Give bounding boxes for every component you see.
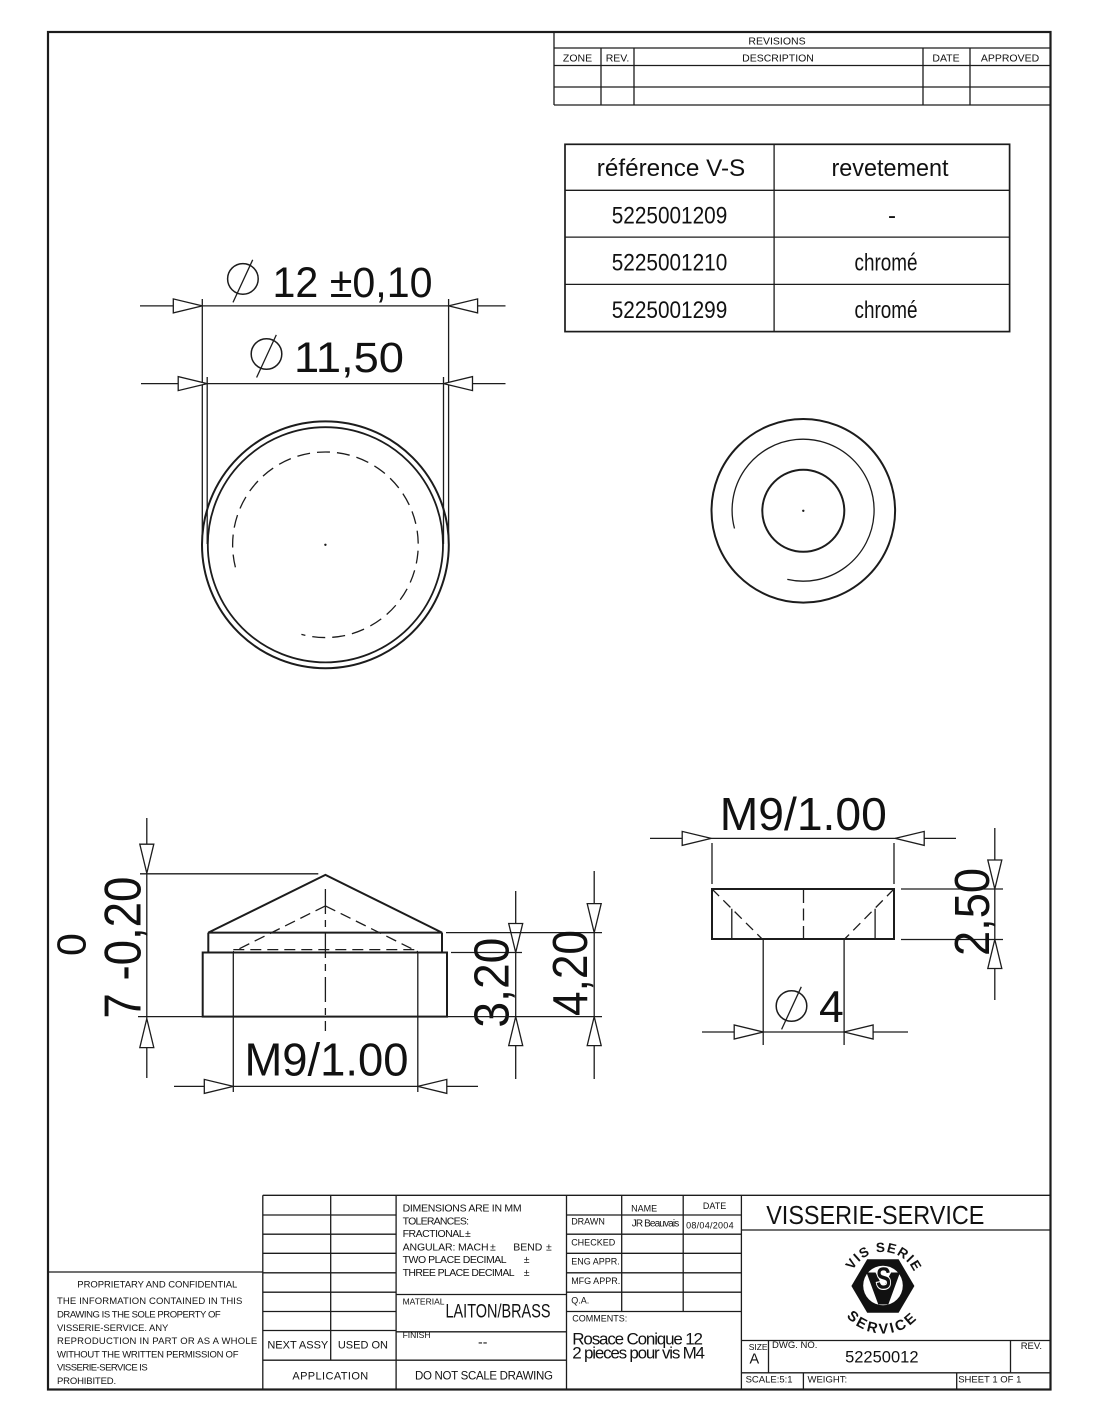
- svg-text:DATE: DATE: [932, 53, 959, 65]
- svg-text:BEND: BEND: [513, 1241, 542, 1253]
- svg-text:5225001209: 5225001209: [612, 202, 728, 229]
- svg-text:TWO PLACE DECIMAL: TWO PLACE DECIMAL: [403, 1254, 507, 1266]
- svg-text:THREE PLACE DECIMAL: THREE PLACE DECIMAL: [403, 1267, 515, 1279]
- svg-text:FRACTIONAL: FRACTIONAL: [403, 1228, 465, 1240]
- svg-text:--: --: [478, 1334, 488, 1350]
- svg-text:11,50: 11,50: [294, 335, 404, 382]
- svg-text:12 ±0,10: 12 ±0,10: [273, 260, 433, 307]
- svg-text:7 -0,20: 7 -0,20: [95, 877, 153, 1019]
- svg-text:ENG APPR.: ENG APPR.: [571, 1257, 620, 1267]
- svg-text:±: ±: [524, 1254, 530, 1266]
- svg-text:DESCRIPTION: DESCRIPTION: [742, 53, 814, 65]
- svg-text:DRAWING IS THE SOLE PROPERTY O: DRAWING IS THE SOLE PROPERTY OF: [57, 1309, 221, 1320]
- svg-text:NAME: NAME: [631, 1204, 657, 1214]
- svg-text:CHECKED: CHECKED: [571, 1237, 616, 1247]
- svg-text:5225001210: 5225001210: [612, 250, 728, 277]
- svg-text:VISSERIE-SERVICE. ANY: VISSERIE-SERVICE. ANY: [57, 1323, 169, 1334]
- svg-text:NEXT ASSY: NEXT ASSY: [267, 1340, 329, 1352]
- svg-text:USED ON: USED ON: [338, 1340, 388, 1352]
- svg-text:SCALE:5:1: SCALE:5:1: [746, 1374, 793, 1385]
- svg-text:M9/1.00: M9/1.00: [720, 788, 887, 840]
- svg-text:MFG APPR.: MFG APPR.: [571, 1276, 620, 1286]
- svg-text:REV.: REV.: [1021, 1341, 1042, 1352]
- svg-text:SHEET 1 OF 1: SHEET 1 OF 1: [958, 1374, 1021, 1385]
- svg-text:2 pieces pour vis M4: 2 pieces pour vis M4: [572, 1344, 705, 1363]
- svg-text:08/04/2004: 08/04/2004: [686, 1220, 734, 1230]
- svg-text:JR Beauvais: JR Beauvais: [632, 1218, 680, 1229]
- svg-text:THE INFORMATION CONTAINED IN T: THE INFORMATION CONTAINED IN THIS: [57, 1296, 242, 1307]
- svg-text:APPLICATION: APPLICATION: [292, 1371, 368, 1383]
- svg-text:±: ±: [465, 1228, 471, 1240]
- svg-text:DRAWN: DRAWN: [571, 1217, 605, 1227]
- svg-text:S: S: [876, 1261, 891, 1295]
- svg-text:PROPRIETARY AND CONFIDENTIAL: PROPRIETARY AND CONFIDENTIAL: [77, 1279, 237, 1290]
- svg-text:0: 0: [49, 933, 95, 956]
- svg-text:WEIGHT:: WEIGHT:: [808, 1374, 848, 1385]
- svg-text:APPROVED: APPROVED: [981, 53, 1040, 65]
- svg-text:DO NOT SCALE DRAWING: DO NOT SCALE DRAWING: [415, 1371, 553, 1383]
- svg-text:4,20: 4,20: [544, 930, 598, 1016]
- svg-text:2,50: 2,50: [946, 868, 1000, 956]
- svg-text:revetement: revetement: [832, 155, 949, 182]
- svg-text:±: ±: [546, 1241, 552, 1253]
- svg-text:M9/1.00: M9/1.00: [245, 1034, 409, 1086]
- svg-text:A: A: [750, 1352, 760, 1368]
- svg-text:52250012: 52250012: [845, 1349, 918, 1367]
- svg-text:SIZE: SIZE: [749, 1342, 768, 1352]
- svg-text:FINISH: FINISH: [403, 1330, 431, 1340]
- svg-text:5225001299: 5225001299: [612, 297, 728, 324]
- svg-text:VISSERIE-SERVICE: VISSERIE-SERVICE: [766, 1200, 984, 1230]
- svg-text:DWG. NO.: DWG. NO.: [772, 1340, 817, 1351]
- svg-text:ANGULAR: MACH: ANGULAR: MACH: [403, 1241, 489, 1253]
- svg-text:ZONE: ZONE: [563, 53, 592, 65]
- svg-text:Q.A.: Q.A.: [571, 1296, 589, 1306]
- svg-text:-: -: [888, 202, 896, 229]
- svg-text:PROHIBITED.: PROHIBITED.: [57, 1376, 116, 1387]
- svg-text:référence V-S: référence V-S: [597, 155, 746, 182]
- svg-text:chromé: chromé: [855, 250, 918, 277]
- svg-text:MATERIAL: MATERIAL: [403, 1297, 445, 1307]
- svg-text:WITHOUT THE WRITTEN PERMISSION: WITHOUT THE WRITTEN PERMISSION OF: [57, 1349, 239, 1360]
- svg-text:TOLERANCES:: TOLERANCES:: [403, 1215, 469, 1227]
- svg-text:LAITON/BRASS: LAITON/BRASS: [446, 1302, 551, 1323]
- svg-text:chromé: chromé: [855, 297, 918, 324]
- svg-text:±: ±: [524, 1267, 530, 1279]
- svg-text:VISSERIE-SERVICE IS: VISSERIE-SERVICE IS: [57, 1363, 148, 1374]
- svg-text:REVISIONS: REVISIONS: [748, 36, 805, 48]
- svg-text:DATE: DATE: [703, 1201, 726, 1211]
- svg-text:4: 4: [819, 983, 844, 1032]
- svg-text:±: ±: [490, 1241, 496, 1253]
- svg-text:DIMENSIONS ARE IN MM: DIMENSIONS ARE IN MM: [403, 1203, 522, 1215]
- svg-text:3,20: 3,20: [466, 938, 520, 1028]
- svg-text:COMMENTS:: COMMENTS:: [572, 1313, 627, 1323]
- svg-text:REPRODUCTION IN PART OR AS A W: REPRODUCTION IN PART OR AS A WHOLE: [57, 1336, 257, 1347]
- svg-text:REV.: REV.: [606, 53, 630, 65]
